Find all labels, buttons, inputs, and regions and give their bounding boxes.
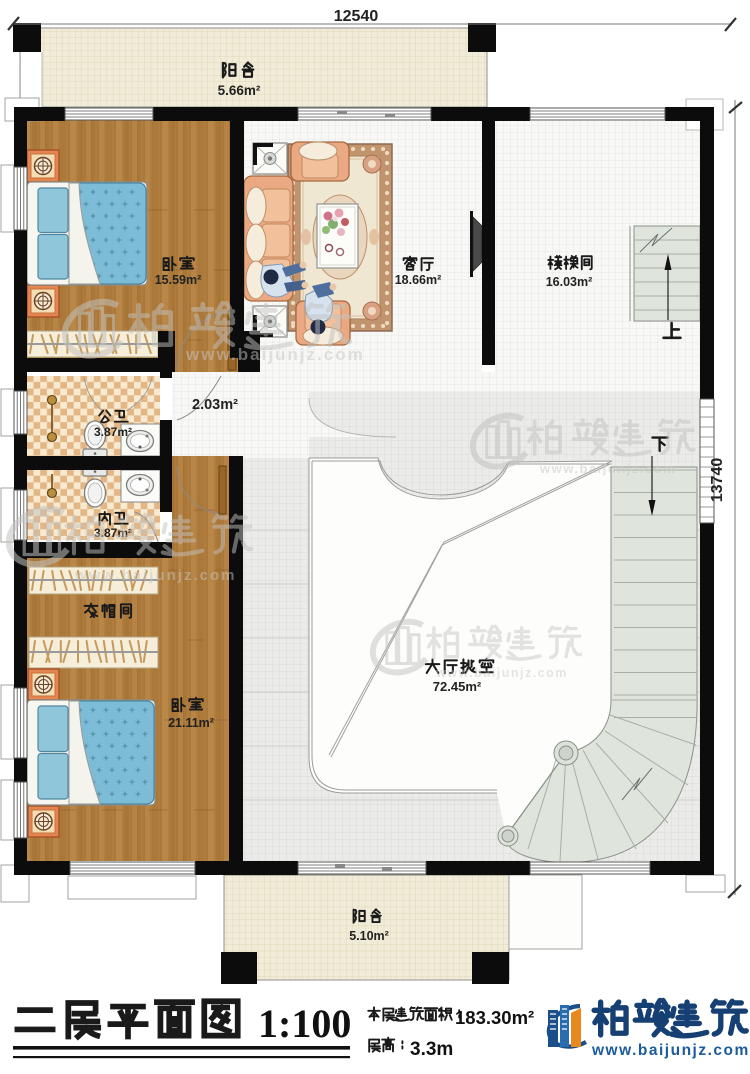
svg-text:www.baijunjz.com: www.baijunjz.com — [435, 666, 568, 680]
svg-text:72.45m²: 72.45m² — [433, 679, 482, 694]
svg-text:www.baijunjz.com: www.baijunjz.com — [185, 345, 365, 364]
svg-text:21.11m²: 21.11m² — [168, 716, 214, 730]
svg-text:3.87m²: 3.87m² — [94, 425, 132, 439]
svg-text:5.66m²: 5.66m² — [218, 83, 261, 98]
svg-text:18.66m²: 18.66m² — [395, 273, 442, 287]
svg-text:www.baijunjz.com: www.baijunjz.com — [74, 567, 236, 584]
svg-text:3.3m: 3.3m — [410, 1039, 453, 1060]
svg-text:15.59m²: 15.59m² — [155, 273, 202, 287]
svg-text:1:100: 1:100 — [258, 1001, 351, 1046]
svg-text:5.10m²: 5.10m² — [349, 929, 389, 943]
svg-text:16.03m²: 16.03m² — [546, 275, 593, 289]
svg-text:183.30m²: 183.30m² — [455, 1007, 534, 1028]
svg-text:www.baijunjz.com: www.baijunjz.com — [539, 461, 676, 476]
svg-text:12540: 12540 — [334, 8, 379, 25]
svg-text:2.03m²: 2.03m² — [192, 397, 238, 413]
svg-text:13740: 13740 — [709, 458, 726, 503]
svg-text:www.baijunjz.com: www.baijunjz.com — [591, 1042, 750, 1059]
